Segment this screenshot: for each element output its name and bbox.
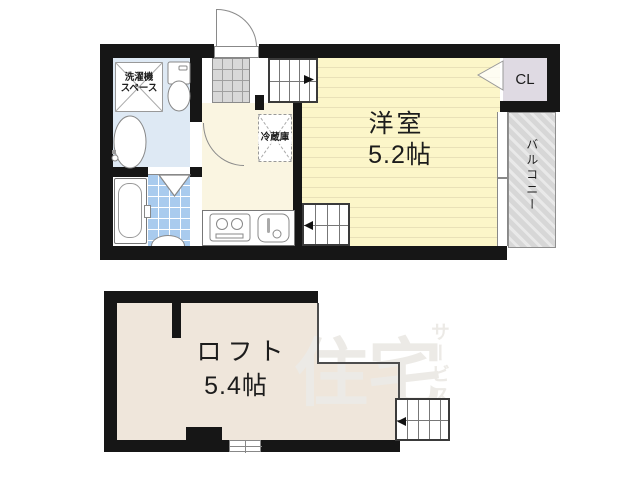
bath-folding-door-icon (158, 174, 191, 198)
loft-edge-step (317, 362, 400, 364)
washbasin-icon (110, 114, 148, 172)
loft-window-hline (230, 446, 262, 447)
watermark-subtext: サービス (425, 322, 452, 406)
balcony-window (497, 112, 508, 246)
main-room-label: 洋室 (330, 110, 463, 139)
wall-top-right-segment (259, 44, 560, 58)
balcony-window-divider (497, 177, 508, 179)
main-room-size: 5.2帖 (330, 141, 470, 170)
wall-stub-entrance (255, 95, 264, 110)
washer-space-label-line2: スペース (115, 84, 163, 95)
closet-door-icon (477, 59, 504, 92)
loft-window (229, 440, 261, 452)
loft-size: 5.4帖 (170, 372, 302, 401)
sink-icon (258, 214, 289, 242)
wall-top-left-segment (100, 44, 214, 58)
loft-wall-stub (172, 303, 181, 338)
bathtub-inner (118, 183, 142, 238)
floor-plan-canvas: 住宅 サービス 洗濯機 スペース (0, 0, 640, 480)
bathtub-icon (114, 178, 147, 244)
loft-window-vline (245, 441, 246, 453)
fridge-space-box: 冷蔵庫 (258, 114, 292, 162)
wall-washroom-right-lower (190, 167, 202, 177)
closet-label: CL (503, 71, 547, 88)
fridge-label: 冷蔵庫 (258, 133, 292, 144)
entrance-tile-floor (212, 58, 250, 103)
loft-edge-right-upper (317, 303, 319, 364)
bath-door-handle (144, 205, 151, 218)
loft-pillar (186, 427, 222, 440)
balcony-label: バルコニー (524, 138, 538, 213)
loft-label: ロフト (175, 338, 311, 367)
loft-wall-bottom-right (261, 440, 400, 452)
toilet-icon (166, 58, 192, 114)
wall-below-closet (500, 101, 560, 112)
washer-space-box: 洗濯機 スペース (115, 62, 163, 112)
loft-wall-top (104, 291, 318, 303)
loft-wall-bottom-left (104, 440, 229, 452)
kitchen-counter (202, 210, 295, 246)
wall-bottom (100, 246, 507, 260)
entrance-door-sill (214, 46, 259, 58)
loft-wall-left (104, 291, 117, 452)
entrance-door-arc (217, 9, 257, 47)
